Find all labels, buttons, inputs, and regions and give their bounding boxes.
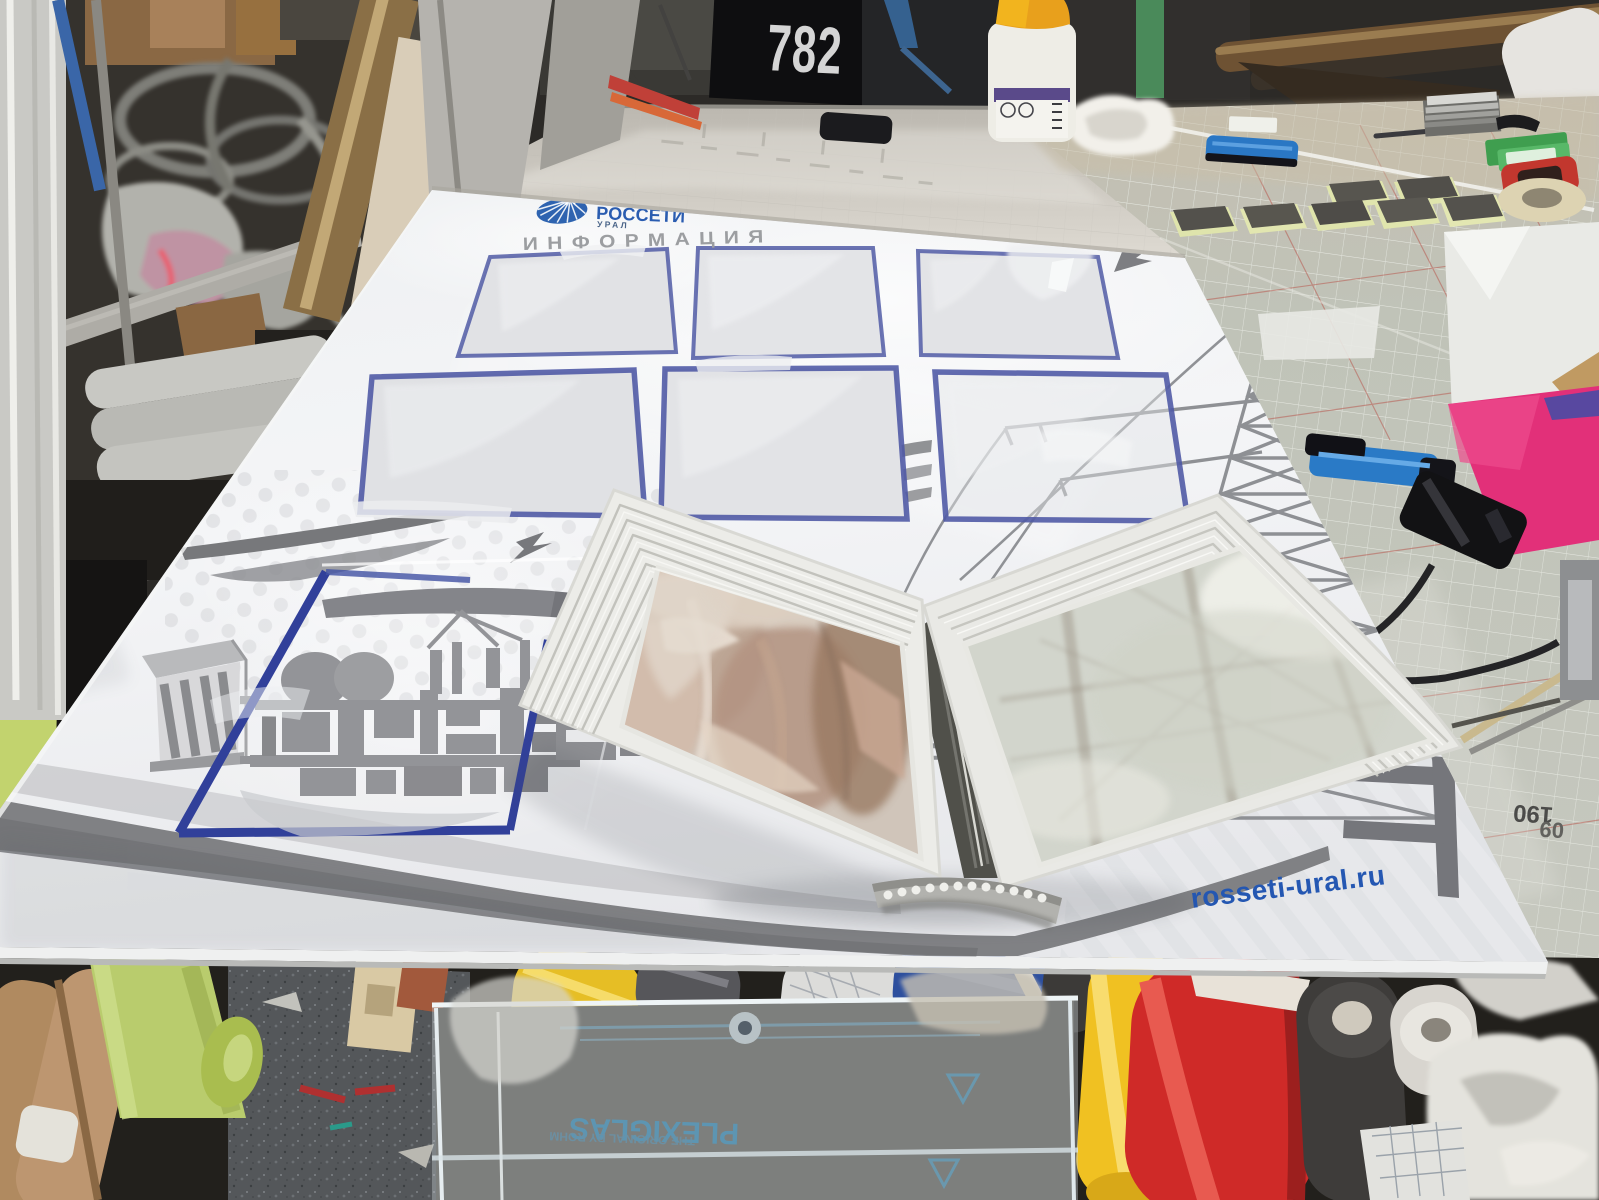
svg-text:782: 782 [765,10,844,88]
svg-text:09: 09 [1539,816,1565,843]
svg-text:УРАЛ: УРАЛ [597,219,629,230]
